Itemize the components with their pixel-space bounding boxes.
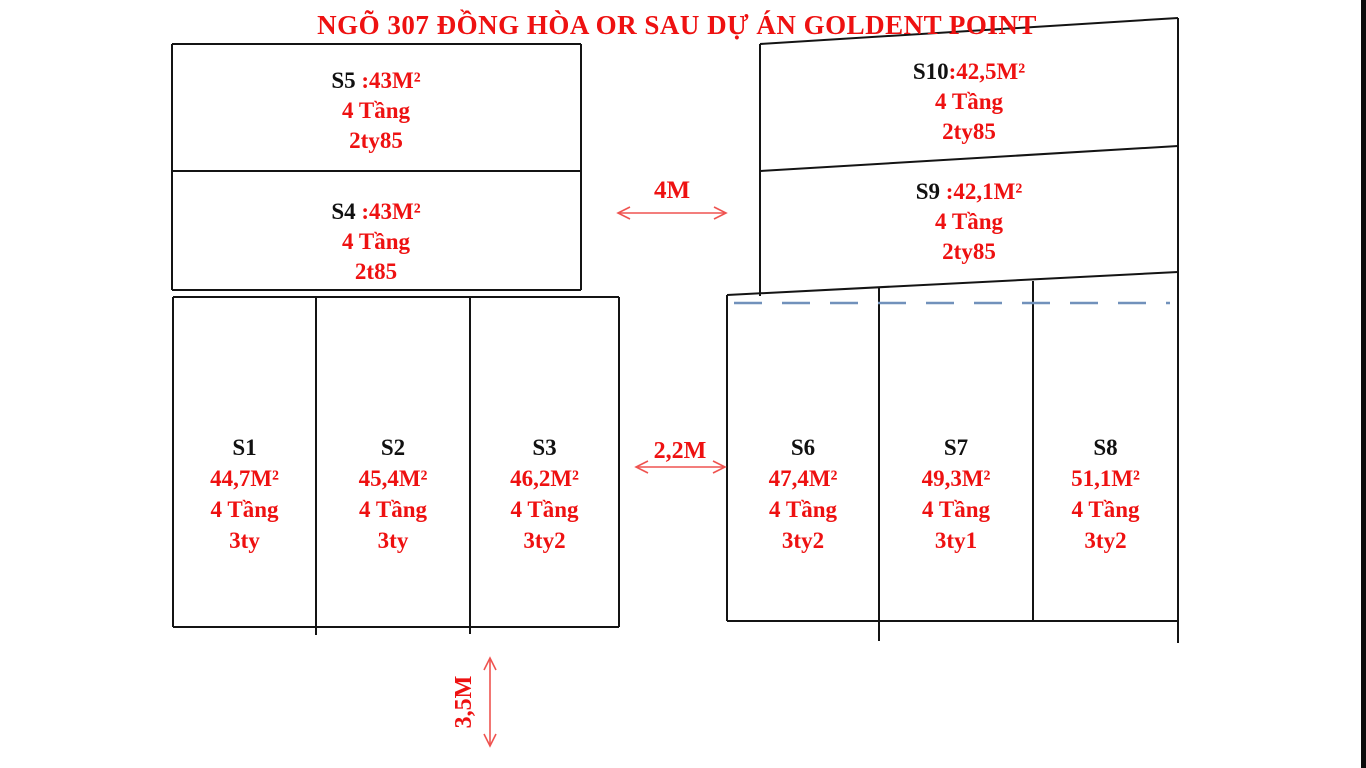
plot-floors: 4 Tầng — [760, 207, 1178, 237]
plot-area: :43M² — [356, 68, 421, 93]
plot-area: :42,5M² — [949, 59, 1026, 84]
plot-price: 3ty2 — [470, 525, 619, 556]
plot-id: S1 — [173, 432, 316, 463]
horizontal-double-arrow-icon — [618, 207, 726, 219]
plot-floors: 4 Tầng — [1033, 494, 1178, 525]
plot-price: 2t85 — [171, 257, 581, 287]
vertical-double-arrow-icon — [484, 658, 496, 746]
plot-floors: 4 Tầng — [470, 494, 619, 525]
plot-id: S6 — [727, 432, 879, 463]
plot-area: 51,1M² — [1033, 463, 1178, 494]
plot-id-area: S4 :43M² — [171, 197, 581, 227]
plot-price: 3ty2 — [1033, 525, 1178, 556]
plot-price: 2ty85 — [760, 237, 1178, 267]
plot-floors: 4 Tầng — [727, 494, 879, 525]
plot-s6-label: S6 47,4M² 4 Tầng 3ty2 — [727, 432, 879, 556]
plot-price: 3ty2 — [727, 525, 879, 556]
plot-s3-label: S3 46,2M² 4 Tầng 3ty2 — [470, 432, 619, 556]
plot-floors: 4 Tầng — [171, 96, 581, 126]
plot-id: S3 — [470, 432, 619, 463]
page-title: NGÕ 307 ĐỒNG HÒA OR SAU DỰ ÁN GOLDENT PO… — [0, 10, 1354, 41]
plot-s2-label: S2 45,4M² 4 Tầng 3ty — [316, 432, 470, 556]
plot-s1-label: S1 44,7M² 4 Tầng 3ty — [173, 432, 316, 556]
plot-price: 2ty85 — [760, 117, 1178, 147]
plot-price: 2ty85 — [171, 126, 581, 156]
right-edge-bar — [1361, 0, 1366, 768]
plot-floors: 4 Tầng — [173, 494, 316, 525]
road-width-4m-label: 4M — [617, 178, 727, 204]
site-plan: NGÕ 307 ĐỒNG HÒA OR SAU DỰ ÁN GOLDENT PO… — [0, 0, 1366, 768]
plot-price: 3ty1 — [879, 525, 1033, 556]
plot-id: S5 — [331, 68, 355, 93]
plot-s4-label: S4 :43M² 4 Tầng 2t85 — [171, 197, 581, 287]
plot-floors: 4 Tầng — [879, 494, 1033, 525]
plot-area: 44,7M² — [173, 463, 316, 494]
plot-area: 46,2M² — [470, 463, 619, 494]
plot-floors: 4 Tầng — [316, 494, 470, 525]
road-width-2-2m-label: 2,2M — [630, 438, 730, 464]
plot-s5-label: S5 :43M² 4 Tầng 2ty85 — [171, 66, 581, 156]
plot-price: 3ty — [173, 525, 316, 556]
road-width-3-5m-label: 3,5M — [451, 672, 481, 732]
plot-id: S8 — [1033, 432, 1178, 463]
plot-area: :43M² — [356, 199, 421, 224]
plot-s9-label: S9 :42,1M² 4 Tầng 2ty85 — [760, 177, 1178, 267]
plot-s10-label: S10:42,5M² 4 Tầng 2ty85 — [760, 57, 1178, 147]
plot-id-area: S9 :42,1M² — [760, 177, 1178, 207]
plot-area: 47,4M² — [727, 463, 879, 494]
plot-id: S9 — [916, 179, 940, 204]
plot-s7-label: S7 49,3M² 4 Tầng 3ty1 — [879, 432, 1033, 556]
plot-s8-label: S8 51,1M² 4 Tầng 3ty2 — [1033, 432, 1178, 556]
plot-area: :42,1M² — [940, 179, 1022, 204]
plot-id: S2 — [316, 432, 470, 463]
plot-floors: 4 Tầng — [760, 87, 1178, 117]
plot-area: 45,4M² — [316, 463, 470, 494]
plot-id-area: S5 :43M² — [171, 66, 581, 96]
plot-id: S4 — [331, 199, 355, 224]
plot-id: S7 — [879, 432, 1033, 463]
plot-price: 3ty — [316, 525, 470, 556]
plot-floors: 4 Tầng — [171, 227, 581, 257]
plot-id-area: S10:42,5M² — [760, 57, 1178, 87]
plot-area: 49,3M² — [879, 463, 1033, 494]
plot-id: S10 — [913, 59, 949, 84]
